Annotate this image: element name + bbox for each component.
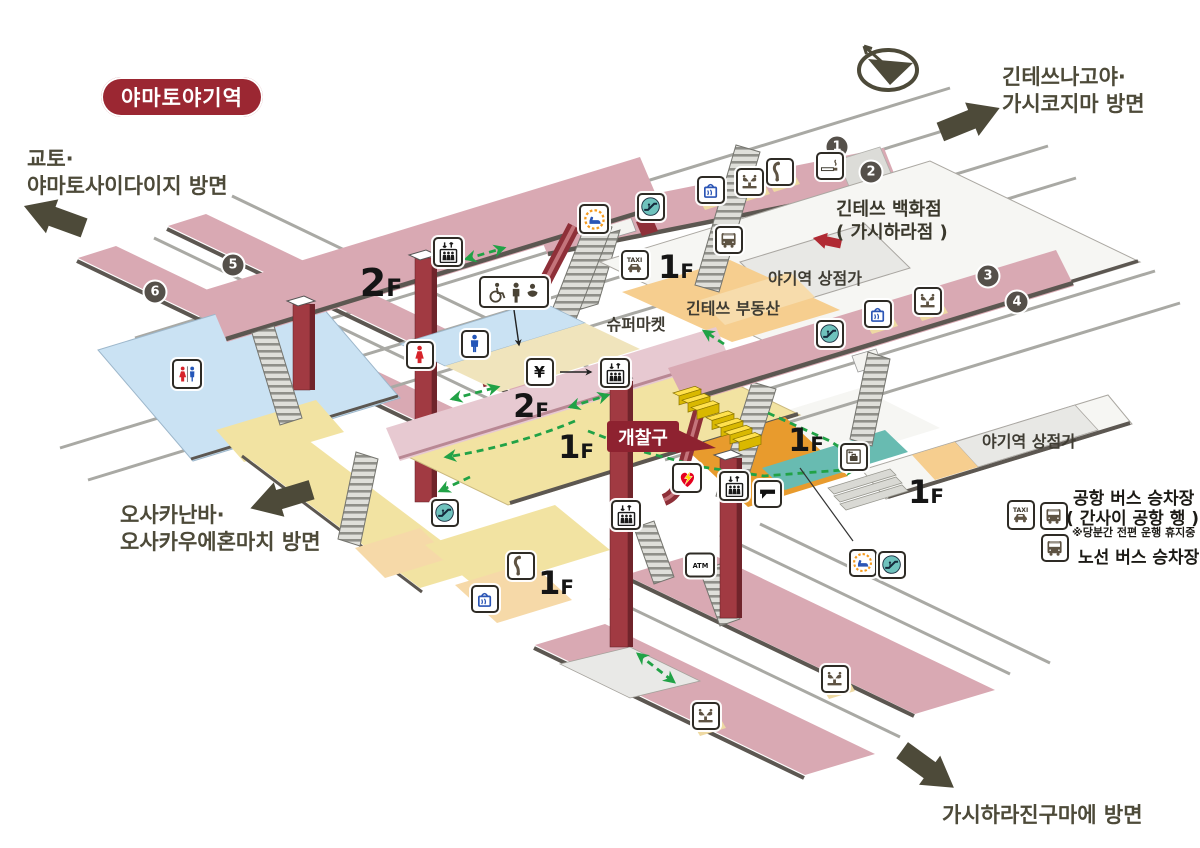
- direction-arrow-northeast: [934, 91, 1007, 148]
- direction-label-southwest: 오사카난바· 오사카우에혼마치 방면: [120, 502, 321, 557]
- label-yagi-shops-north: 야기역 상점가: [768, 265, 862, 289]
- taxi-stand-icon-legend: [1007, 500, 1035, 530]
- legend-local-bus: 노선 버스 승차장: [1078, 543, 1199, 568]
- escalator-icon-platform34: [816, 320, 844, 348]
- fountain-icon-platform-south-a: [692, 702, 720, 730]
- station-geometry: TAXI: [0, 0, 1200, 848]
- waiting-room-icon: [579, 204, 609, 234]
- station-map: TAXI: [0, 0, 1200, 848]
- department-store-label: 긴테쓰 백화점 ( 가시하라점 ): [836, 199, 948, 244]
- department-store-line2: ( 가시하라점 ): [836, 222, 948, 245]
- unisex-toilet-icon: [172, 359, 202, 389]
- direction-northwest-line1: 교토·: [27, 146, 228, 173]
- platform-number-5: 5: [221, 253, 246, 278]
- platform-number-3: 3: [976, 264, 1001, 289]
- ticket-window-icon: [754, 480, 782, 508]
- mens-toilet-icon: [461, 330, 489, 358]
- floor-label-1f-gate: 1F: [558, 431, 594, 463]
- elevator-icon-2f-center: [600, 358, 630, 388]
- phone-icon-southwest: [507, 552, 535, 580]
- bus-stop-icon-north: [715, 226, 743, 254]
- floor-label-1f-southwest: 1F: [538, 567, 574, 599]
- ticket-gate-banner: 개찰구: [607, 421, 679, 452]
- kiosk-icon-platform12: [697, 176, 725, 204]
- elevator-icon-1f-center: [611, 500, 641, 530]
- coin-locker-icon: [840, 443, 868, 471]
- elevator-icon-2f-west: [433, 237, 463, 267]
- fountain-icon-platform34: [914, 287, 942, 315]
- accessible-toilet-icon: [479, 276, 549, 308]
- direction-southeast-line1: 가시하라진구마에 방면: [942, 802, 1143, 829]
- direction-label-northwest: 교토· 야마토사이다이지 방면: [27, 146, 228, 201]
- floor-label-1f-mid: 1F: [788, 424, 824, 456]
- platform-number-4: 4: [1005, 290, 1030, 315]
- platform-number-2: 2: [859, 160, 884, 185]
- escalator-icon-1f: [878, 551, 906, 579]
- direction-southwest-line1: 오사카난바·: [120, 502, 321, 529]
- compass-icon: [859, 46, 917, 90]
- escalator-icon-platform12: [637, 193, 665, 221]
- direction-southwest-line2: 오사카우에혼마치 방면: [120, 529, 321, 556]
- aed-icon: [672, 463, 702, 493]
- bus-stop-icon-airport: [1040, 502, 1068, 530]
- direction-arrow-southeast: [892, 736, 965, 803]
- atm-icon: [685, 553, 715, 578]
- floor-label-2f-west: 2F: [360, 264, 403, 302]
- platform-number-6: 6: [143, 280, 168, 305]
- direction-northeast-line1: 긴테쓰나고야·: [1002, 64, 1145, 91]
- kiosk-icon-southwest: [471, 585, 499, 613]
- label-kintetsu-fudosan: 긴테쓰 부동산: [686, 295, 780, 319]
- direction-northeast-line2: 가시코지마 방면: [1002, 91, 1145, 118]
- department-store-line1: 긴테쓰 백화점: [836, 199, 948, 222]
- fountain-icon-platform12: [736, 168, 764, 196]
- direction-label-northeast: 긴테쓰나고야· 가시코지마 방면: [1002, 64, 1145, 119]
- kiosk-icon-platform34: [864, 300, 892, 328]
- waiting-room-icon-1f: [849, 549, 877, 577]
- floor-label-1f-north: 1F: [658, 251, 694, 283]
- floor-label-1f-east: 1F: [908, 476, 944, 508]
- station-name-badge: 야마토야기역: [101, 77, 263, 117]
- label-supermarket: 슈퍼마켓: [607, 311, 666, 335]
- phone-icon-platform12: [766, 158, 794, 186]
- taxi-stand-icon-north: [621, 250, 649, 280]
- direction-label-southeast: 가시하라진구마에 방면: [942, 802, 1143, 829]
- legend-airport-bus-note: ※당분간 전편 운행 휴지중: [1072, 524, 1195, 540]
- escalator-icon-southwest: [431, 499, 459, 527]
- floor-label-2f-center: 2F: [513, 390, 549, 422]
- elevator-icon-1f-east: [719, 471, 749, 501]
- smoking-area-icon: [816, 152, 844, 180]
- label-yagi-shops-east: 야기역 상점가: [982, 428, 1076, 452]
- ticket-machine-icon: [526, 358, 554, 386]
- direction-northwest-line2: 야마토사이다이지 방면: [27, 173, 228, 200]
- womens-toilet-icon: [406, 341, 434, 369]
- fountain-icon-platform-south-b: [821, 665, 849, 693]
- bus-stop-icon-local: [1041, 534, 1069, 562]
